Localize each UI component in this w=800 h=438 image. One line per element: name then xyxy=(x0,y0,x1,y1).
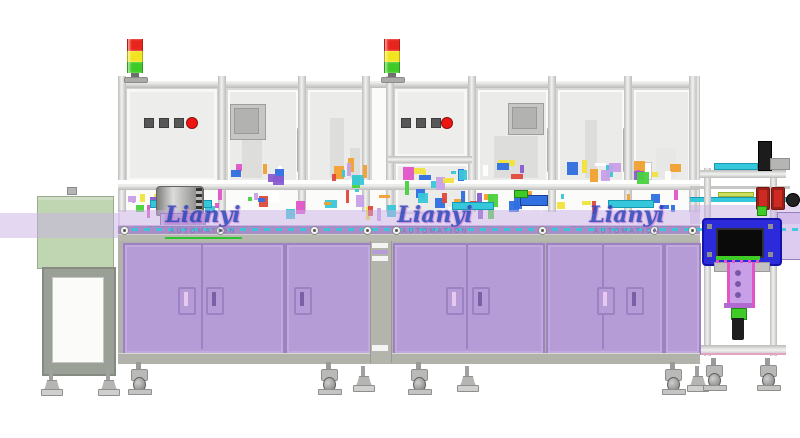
press-column xyxy=(727,262,755,308)
caster-foot xyxy=(318,362,340,394)
caster-foot xyxy=(408,362,430,394)
conveyor-band-overlay-main xyxy=(118,210,700,225)
equipment-blob xyxy=(459,170,468,180)
level-stem xyxy=(49,370,53,381)
level-pad xyxy=(353,385,375,392)
equipment-blob xyxy=(497,163,509,170)
cabinet-door-handle xyxy=(597,287,615,315)
level-stem xyxy=(106,370,110,381)
signal-light-green xyxy=(127,62,143,73)
caster-pad xyxy=(408,389,432,395)
equipment-blob xyxy=(352,175,364,185)
column-stripe xyxy=(372,256,388,261)
frame-post xyxy=(548,76,556,212)
panel-square-button xyxy=(174,118,184,128)
bowl-feeder-slats xyxy=(196,188,202,212)
band-bearing-marker xyxy=(363,226,372,235)
caster-foot xyxy=(703,358,725,390)
equipment-blob xyxy=(660,205,669,209)
handle-slot xyxy=(300,292,304,306)
cad-render-scene: Lianyi AUTOMATION Lianyi AUTOMATION Lian… xyxy=(0,0,800,438)
level-stem xyxy=(465,366,469,377)
equipment-blob xyxy=(140,194,145,202)
equipment-blob xyxy=(511,174,522,179)
equipment-blob xyxy=(379,195,390,199)
handle-slot xyxy=(478,292,482,306)
equipment-blob xyxy=(414,168,425,173)
green-fixture xyxy=(514,190,528,198)
panel-square-button xyxy=(144,118,154,128)
equipment-blob xyxy=(248,197,252,200)
frame-post xyxy=(386,76,394,212)
tunnel-magenta-dots xyxy=(716,260,760,263)
column-stripe xyxy=(372,243,388,248)
equipment-blob xyxy=(595,163,606,166)
column-hole xyxy=(735,270,741,276)
emergency-stop-button xyxy=(441,117,453,129)
equipment-blob xyxy=(665,171,671,184)
hmi-screen xyxy=(234,108,259,134)
leveling-foot xyxy=(456,366,478,398)
equipment-blob xyxy=(355,189,358,192)
cabinet-door-handle xyxy=(626,287,644,315)
equipment-blob xyxy=(347,163,351,176)
frame-post xyxy=(298,76,306,212)
equipment-blob xyxy=(418,193,428,204)
cabinet-filler xyxy=(664,243,701,355)
band-bearing-marker xyxy=(392,226,401,235)
panel-square-button xyxy=(431,118,441,128)
level-stem xyxy=(361,366,365,377)
module2-mid-rail xyxy=(388,156,472,163)
black-cylinder xyxy=(732,318,744,340)
tunnel-bolt xyxy=(768,224,773,229)
band-bearing-marker xyxy=(310,226,319,235)
cabinet-m1-left xyxy=(123,243,285,355)
leveling-foot xyxy=(97,370,119,402)
hand-knob xyxy=(786,193,800,207)
panel-square-button xyxy=(159,118,169,128)
outfeed-stand-panel xyxy=(52,277,104,363)
column-hole xyxy=(735,292,741,298)
band-bearing-marker xyxy=(650,226,659,235)
equipment-blob xyxy=(263,164,267,174)
handle-slot xyxy=(452,292,456,306)
tunnel-bolt xyxy=(707,252,712,257)
blue-tunnel-opening xyxy=(716,228,764,258)
equipment-blob xyxy=(509,160,515,166)
handle-slot xyxy=(184,292,188,306)
equipment-blob xyxy=(443,178,454,183)
cabinet-door-handle xyxy=(294,287,312,315)
signal-light-red xyxy=(127,39,143,51)
equipment-blob xyxy=(405,181,410,195)
equipment-blob xyxy=(451,171,456,174)
hmi-screen xyxy=(512,107,537,129)
caster-pad xyxy=(703,385,727,391)
equipment-blob xyxy=(363,165,366,178)
signal-light-yellow xyxy=(384,51,400,62)
equipment-blob xyxy=(346,190,350,203)
equipment-blob xyxy=(561,194,565,199)
handle-slot xyxy=(632,292,636,306)
cabinet-m2-left xyxy=(393,243,545,355)
equipment-blob xyxy=(520,165,524,173)
level-stem xyxy=(695,366,699,377)
equipment-blob xyxy=(582,201,591,205)
equipment-blob xyxy=(609,163,621,172)
equipment-blob xyxy=(442,193,447,203)
equipment-blob xyxy=(567,162,578,175)
band-bearing-marker xyxy=(216,226,225,235)
caster-pad xyxy=(757,385,781,391)
signal-light-yellow xyxy=(127,51,143,62)
equipment-blob xyxy=(324,202,331,205)
equipment-blob xyxy=(332,174,336,182)
equipment-blob xyxy=(637,172,648,184)
outfeed-antenna xyxy=(67,187,77,195)
equipment-blob xyxy=(652,172,657,177)
frame-post xyxy=(362,76,370,212)
caster-foot xyxy=(757,358,779,390)
tunnel-bolt xyxy=(707,224,712,229)
band-bearing-marker xyxy=(688,226,697,235)
equipment-blob xyxy=(403,167,413,180)
frame-post-edge xyxy=(696,76,700,212)
caster-pad xyxy=(662,389,686,395)
level-pad xyxy=(98,389,120,396)
signal-tower-base xyxy=(124,77,148,83)
equipment-blob xyxy=(273,176,284,185)
equipment-blob xyxy=(557,202,564,210)
hmi-monitor-module2 xyxy=(508,103,544,135)
cyan-top-rail xyxy=(714,163,758,170)
cabinet-door-handle xyxy=(472,287,490,315)
module1-control-panel xyxy=(126,88,218,182)
band-bearing-marker xyxy=(538,226,547,235)
caster-pad xyxy=(318,389,342,395)
cabinet-door-handle xyxy=(446,287,464,315)
band-bearing-marker xyxy=(120,226,129,235)
handle-slot xyxy=(603,292,607,306)
machinery-silhouette xyxy=(242,138,262,178)
conveyor-band-overlay-left xyxy=(0,213,120,238)
hmi-monitor-module1 xyxy=(230,104,266,140)
signal-light-green xyxy=(384,62,400,73)
green-sensor-block xyxy=(757,206,767,216)
emergency-stop-button xyxy=(186,117,198,129)
equipment-blob xyxy=(590,169,598,182)
level-pad xyxy=(457,385,479,392)
column-hole xyxy=(735,281,741,287)
motor-bracket xyxy=(770,158,790,170)
cabinet-m1-left-divider xyxy=(201,245,203,349)
handle-slot xyxy=(212,292,216,306)
equipment-blob xyxy=(128,196,136,202)
equipment-blob xyxy=(431,181,437,188)
column-stripe xyxy=(372,345,388,351)
red-clamp-block xyxy=(771,187,785,210)
caster-foot xyxy=(662,362,684,394)
frame-post xyxy=(468,76,476,212)
equipment-blob xyxy=(356,195,364,207)
leveling-foot xyxy=(352,366,374,398)
conveyor-segment xyxy=(608,200,654,208)
frame-post xyxy=(118,76,126,212)
panel-square-button xyxy=(416,118,426,128)
leveling-foot xyxy=(40,370,62,402)
frame-post xyxy=(624,76,632,212)
equipment-blob xyxy=(215,203,219,208)
enclosure-top-beam xyxy=(118,76,700,88)
equipment-blob xyxy=(582,160,587,174)
equipment-blob xyxy=(477,193,482,202)
cabinet-door-handle xyxy=(178,287,196,315)
equipment-blob xyxy=(342,170,346,177)
equipment-blob xyxy=(419,175,431,181)
panel-square-button xyxy=(401,118,411,128)
cabinet-m2-left-divider xyxy=(466,245,468,349)
equipment-blob xyxy=(674,190,678,200)
cabinet-door-handle xyxy=(206,287,224,315)
tunnel-bolt xyxy=(768,252,773,257)
equipment-blob xyxy=(268,191,279,203)
caster-pad xyxy=(128,389,152,395)
signal-light-red xyxy=(384,39,400,51)
equipment-blob xyxy=(231,170,240,177)
right-station-pink-line xyxy=(700,353,786,355)
level-pad xyxy=(41,389,63,396)
machinery-silhouette xyxy=(494,136,538,178)
signal-tower-base xyxy=(381,77,405,83)
right-station-top-beam xyxy=(700,170,786,178)
equipment-blob xyxy=(258,198,265,202)
caster-foot xyxy=(128,362,150,394)
equipment-blob xyxy=(670,164,681,172)
equipment-blob xyxy=(483,165,488,175)
conveyor-segment xyxy=(452,202,494,210)
equipment-blob xyxy=(218,189,223,200)
column-stripe-purple xyxy=(372,250,388,254)
